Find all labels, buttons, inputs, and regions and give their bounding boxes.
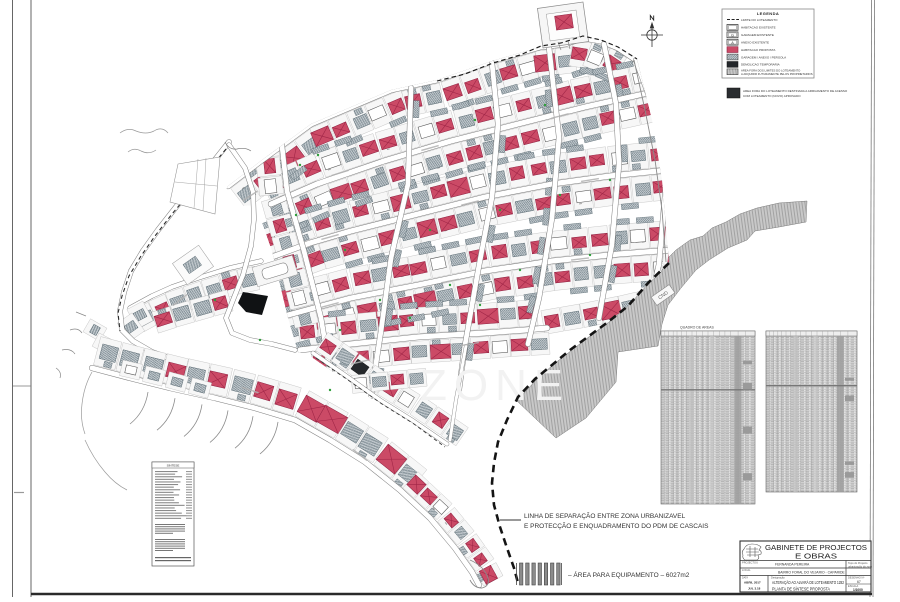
svg-text:SINTESE: SINTESE bbox=[167, 464, 180, 468]
svg-text:urbanização da zona: urbanização da zona bbox=[848, 565, 873, 569]
svg-text:Designação: Designação bbox=[771, 576, 785, 580]
svg-text:ZONE: ZONE bbox=[420, 361, 570, 410]
svg-text:LINHA DE SEPARAÇÃO ENTRE ZONA: LINHA DE SEPARAÇÃO ENTRE ZONA URBANIZAVE… bbox=[524, 511, 686, 520]
svg-text:A ADQUIRIR FUTURAMENTE PELOS P: A ADQUIRIR FUTURAMENTE PELOS PROPRIETARI… bbox=[741, 72, 813, 76]
svg-text:FERNANDA PEREIRA: FERNANDA PEREIRA bbox=[775, 563, 810, 567]
svg-text:HABITACAO EXISTENTE: HABITACAO EXISTENTE bbox=[741, 26, 776, 30]
svg-text:GARAGEM / ANEXO / PERGOLA: GARAGEM / ANEXO / PERGOLA bbox=[741, 55, 786, 59]
svg-text:ALTERAÇÃO AO ALVARÁ DE LOTEAME: ALTERAÇÃO AO ALVARÁ DE LOTEAMENTO 1282 bbox=[772, 580, 844, 585]
svg-text:QUADRO DE AREAS: QUADRO DE AREAS bbox=[680, 326, 715, 330]
svg-text:E PROTECÇÃO E ENQUADRAMENTO DO: E PROTECÇÃO E ENQUADRAMENTO DO PDM DE CA… bbox=[524, 521, 709, 530]
svg-text:ABRIL 2017: ABRIL 2017 bbox=[744, 581, 761, 585]
svg-text:LEGENDA: LEGENDA bbox=[757, 11, 779, 16]
svg-text:PLANTA DE SÍNTESE PROPOSTA: PLANTA DE SÍNTESE PROPOSTA bbox=[772, 587, 830, 592]
svg-text:– ÁREA PARA EQUIPAMENTO – 6: – ÁREA PARA EQUIPAMENTO – 6027m2 bbox=[568, 570, 690, 579]
svg-text:DEMOLICAO TEMPORARIA: DEMOLICAO TEMPORARIA bbox=[741, 63, 780, 67]
svg-text:LIMITE DO LOTEAMENTO: LIMITE DO LOTEAMENTO bbox=[741, 18, 778, 22]
svg-text:GARAGEM EXISTENTE: GARAGEM EXISTENTE bbox=[741, 33, 774, 37]
svg-text:A: A bbox=[731, 41, 734, 45]
svg-text:PROJECTOU: PROJECTOU bbox=[742, 561, 758, 565]
svg-text:67: 67 bbox=[857, 580, 861, 584]
svg-text:JUL 3.18: JUL 3.18 bbox=[748, 587, 761, 591]
svg-text:GABINETE DE PROJECTOS: GABINETE DE PROJECTOS bbox=[765, 545, 867, 552]
svg-text:Topo do Projecto: Topo do Projecto bbox=[848, 561, 868, 565]
svg-text:G: G bbox=[731, 34, 734, 38]
svg-text:E OBRAS: E OBRAS bbox=[795, 554, 837, 561]
svg-text:DATA: DATA bbox=[742, 577, 748, 580]
svg-text:BAIRRO FORAL DO VEJARIO - CAPA: BAIRRO FORAL DO VEJARIO - CAPARIDE bbox=[778, 571, 845, 575]
svg-text:LOCAL: LOCAL bbox=[742, 568, 751, 572]
svg-text:1/1000: 1/1000 bbox=[853, 588, 863, 592]
svg-text:COM LOTEAMENTO (NOVO) APROVADO: COM LOTEAMENTO (NOVO) APROVADO bbox=[743, 94, 801, 98]
svg-text:ANEXO EXISTENTE: ANEXO EXISTENTE bbox=[741, 41, 769, 45]
svg-text:HABITACAO PROPOSTA: HABITACAO PROPOSTA bbox=[741, 48, 775, 52]
svg-text:AREA FORA DO LOTEAMENTO DESTIN: AREA FORA DO LOTEAMENTO DESTINADA A ARRU… bbox=[743, 89, 848, 93]
